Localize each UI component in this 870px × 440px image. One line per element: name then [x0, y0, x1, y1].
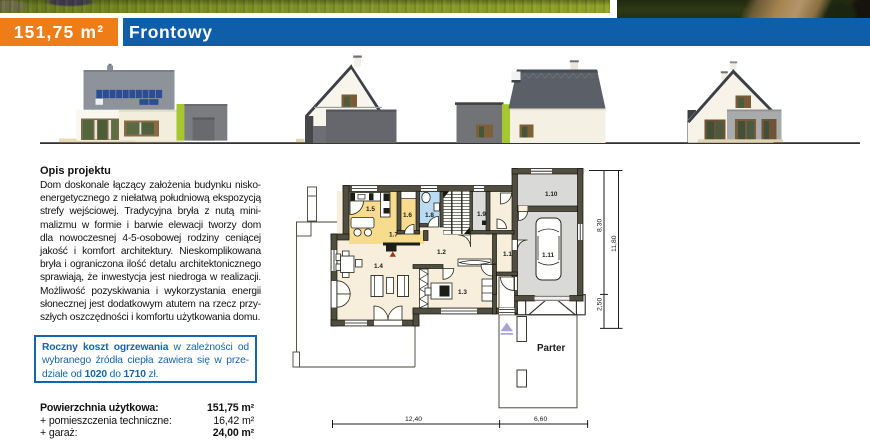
svg-text:11,80: 11,80 [611, 235, 618, 252]
svg-text:1.2: 1.2 [437, 249, 446, 256]
svg-text:1.5: 1.5 [366, 206, 375, 213]
svg-text:Parter: Parter [537, 343, 566, 354]
svg-text:1.8: 1.8 [425, 212, 434, 219]
svg-text:2,50: 2,50 [597, 298, 604, 311]
svg-text:1.11: 1.11 [542, 252, 555, 259]
svg-text:1.9: 1.9 [477, 211, 486, 218]
svg-text:12,40: 12,40 [405, 416, 422, 423]
svg-text:1.4: 1.4 [374, 263, 383, 270]
svg-text:6,60: 6,60 [534, 416, 547, 423]
svg-text:1.7: 1.7 [389, 232, 398, 239]
svg-text:8,30: 8,30 [597, 219, 604, 232]
svg-text:1.3: 1.3 [458, 289, 467, 296]
svg-text:1.6: 1.6 [403, 212, 412, 219]
svg-text:1.1: 1.1 [503, 251, 512, 258]
svg-text:1.10: 1.10 [545, 191, 558, 198]
